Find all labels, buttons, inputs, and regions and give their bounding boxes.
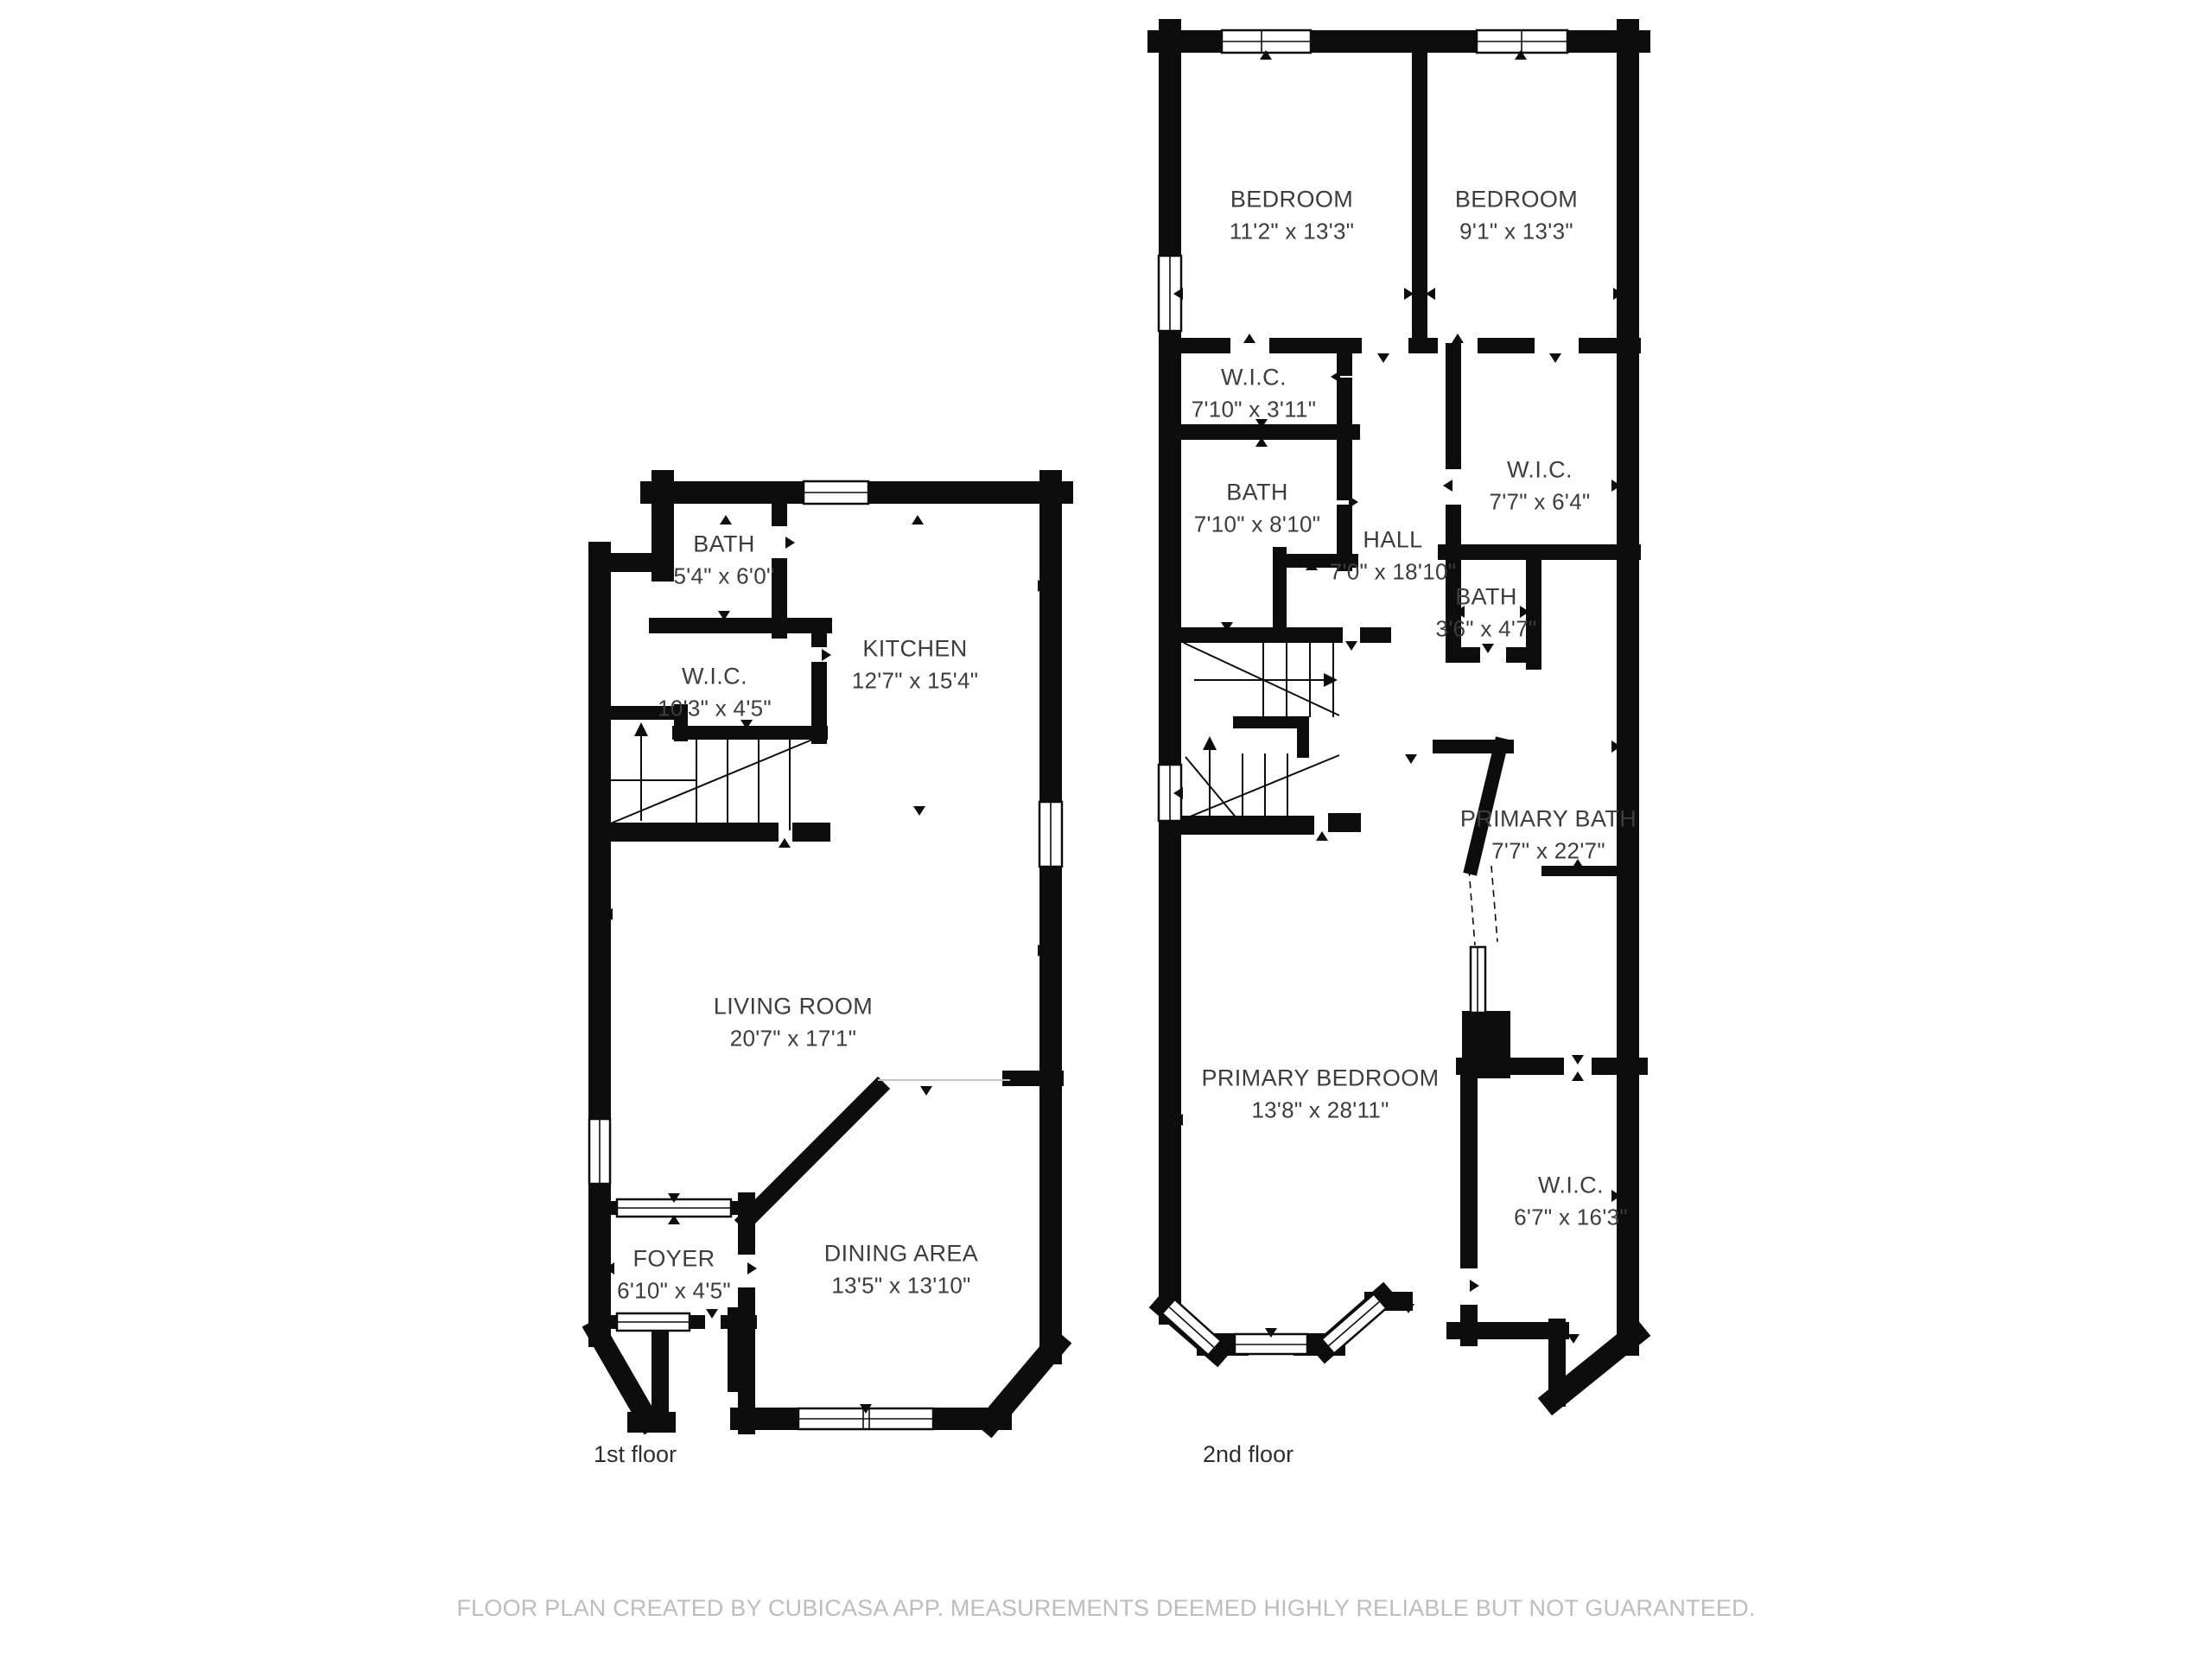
room-dims: 12'7" x 15'4": [852, 667, 979, 695]
floor-label-2nd: 2nd floor: [1203, 1441, 1294, 1468]
room-dims: 7'0" x 18'10": [1330, 558, 1457, 586]
floor-plan-page: BATH 5'4" x 6'0" W.I.C. 10'3" x 4'5" KIT…: [0, 0, 2212, 1659]
room-label-wic-primary: W.I.C. 6'7" x 16'3": [1514, 1172, 1628, 1231]
room-label-bath-2f-left: BATH 7'10" x 8'10": [1194, 479, 1321, 538]
room-dims: 5'4" x 6'0": [674, 563, 775, 590]
room-dims: 10'3" x 4'5": [658, 695, 772, 722]
room-label-bath-2f-small: BATH 3'6" x 4'7": [1436, 583, 1537, 643]
room-label-wic-2f-right: W.I.C. 7'7" x 6'4": [1490, 456, 1591, 516]
room-dims: 6'10" x 4'5": [617, 1277, 731, 1305]
room-name: BEDROOM: [1230, 186, 1355, 213]
room-name: BEDROOM: [1455, 186, 1578, 213]
room-dims: 7'10" x 8'10": [1194, 511, 1321, 538]
floor-label-1st: 1st floor: [594, 1441, 677, 1468]
room-name: HALL: [1330, 526, 1457, 554]
room-dims: 3'6" x 4'7": [1436, 615, 1537, 643]
room-label-primary-bedroom: PRIMARY BEDROOM 13'8" x 28'11": [1201, 1065, 1439, 1124]
room-label-bath-1f: BATH 5'4" x 6'0": [674, 531, 775, 590]
room-dims: 7'7" x 6'4": [1490, 488, 1591, 516]
room-label-bedroom-2: BEDROOM 9'1" x 13'3": [1455, 186, 1578, 245]
floor-plan-canvas: [0, 0, 2212, 1659]
room-dims: 13'8" x 28'11": [1201, 1096, 1439, 1124]
room-dims: 7'7" x 22'7": [1460, 837, 1637, 865]
room-name: W.I.C.: [1490, 456, 1591, 484]
room-name: W.I.C.: [1192, 364, 1317, 391]
room-dims: 20'7" x 17'1": [714, 1025, 873, 1052]
room-name: BATH: [674, 531, 775, 558]
room-name: BATH: [1436, 583, 1537, 611]
room-label-bedroom-1: BEDROOM 11'2" x 13'3": [1230, 186, 1355, 245]
room-label-hall: HALL 7'0" x 18'10": [1330, 526, 1457, 586]
room-dims: 11'2" x 13'3": [1230, 218, 1355, 245]
room-dims: 9'1" x 13'3": [1455, 218, 1578, 245]
second-floor-stairs: [1184, 643, 1339, 821]
room-name: BATH: [1194, 479, 1321, 506]
room-name: KITCHEN: [852, 635, 979, 663]
disclaimer-text: FLOOR PLAN CREATED BY CUBICASA APP. MEAS…: [0, 1595, 2212, 1622]
room-label-foyer: FOYER 6'10" x 4'5": [617, 1245, 731, 1305]
room-name: LIVING ROOM: [714, 993, 873, 1020]
room-dims: 6'7" x 16'3": [1514, 1204, 1628, 1231]
room-dims: 7'10" x 3'11": [1192, 396, 1317, 423]
room-name: W.I.C.: [1514, 1172, 1628, 1199]
room-name: DINING AREA: [824, 1240, 978, 1268]
room-name: PRIMARY BEDROOM: [1201, 1065, 1439, 1092]
room-name: PRIMARY BATH: [1460, 805, 1637, 833]
room-label-wic-1f: W.I.C. 10'3" x 4'5": [658, 663, 772, 722]
room-label-dining-area: DINING AREA 13'5" x 13'10": [824, 1240, 978, 1300]
room-name: W.I.C.: [658, 663, 772, 690]
room-label-living-room: LIVING ROOM 20'7" x 17'1": [714, 993, 873, 1052]
room-label-wic-2f-left: W.I.C. 7'10" x 3'11": [1192, 364, 1317, 423]
room-name: FOYER: [617, 1245, 731, 1273]
room-label-kitchen: KITCHEN 12'7" x 15'4": [852, 635, 979, 695]
room-dims: 13'5" x 13'10": [824, 1272, 978, 1300]
room-label-primary-bath: PRIMARY BATH 7'7" x 22'7": [1460, 805, 1637, 865]
